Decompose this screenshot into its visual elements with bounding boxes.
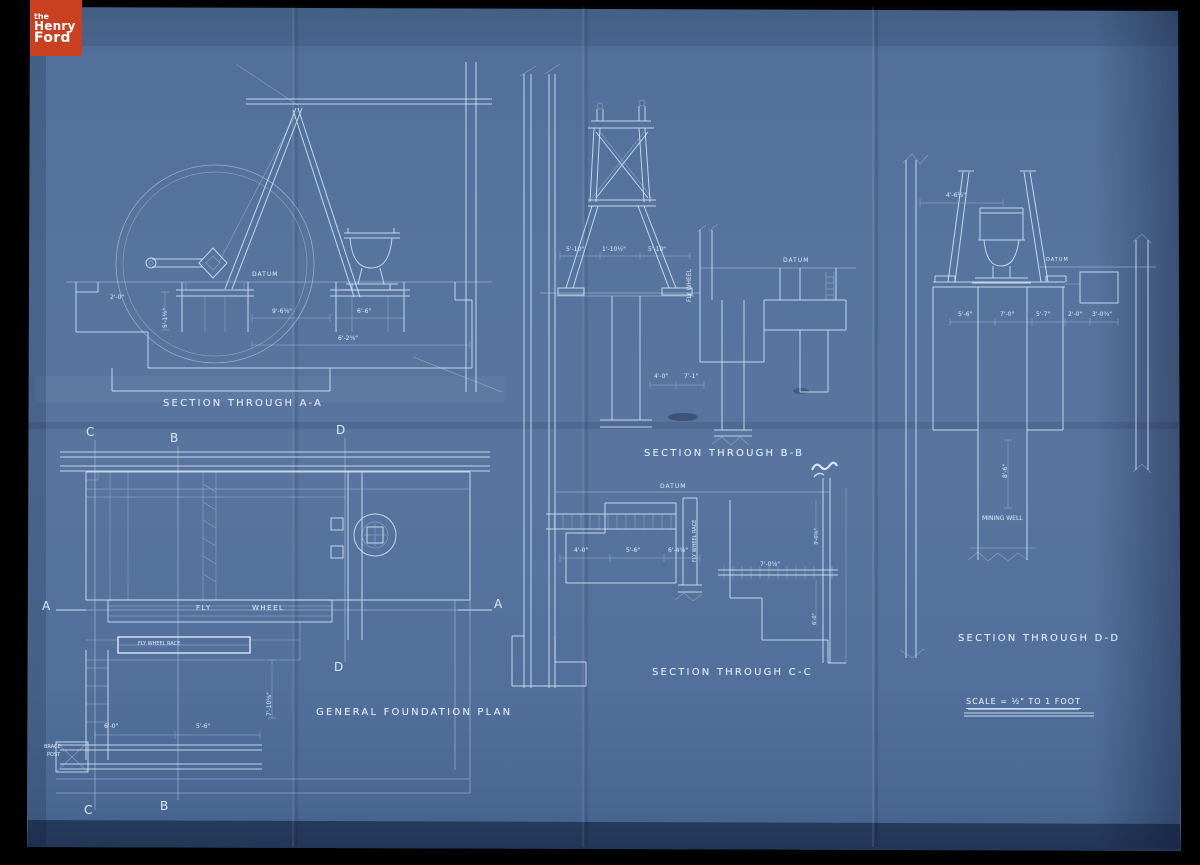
dimension-label: 4'-0" (574, 547, 588, 554)
dimension-label: 5'-6" (196, 723, 210, 730)
section-dd-title: SECTION THROUGH D-D (958, 633, 1120, 644)
dimension-label: 8'-6" (1002, 464, 1009, 478)
section-marker-b-top: B (170, 431, 178, 445)
section-cc-title: SECTION THROUGH C-C (652, 667, 813, 678)
datum-label: DATUM (660, 483, 686, 490)
section-marker-b-bottom: B (160, 799, 168, 813)
dimension-label: 2'-0" (1068, 311, 1082, 318)
fly-wheel-vertical-label: FLY WHEEL (686, 269, 693, 302)
scale-note: SCALE = ½" TO 1 FOOT (966, 697, 1081, 709)
dimension-label: 1'-10½" (602, 246, 626, 253)
dimension-label: 6'-6" (357, 308, 371, 315)
dimension-label: 5'-1½" (162, 308, 169, 328)
fly-wheel-race-vertical-label: FLY WHEEL RACE (692, 520, 698, 562)
blueprint-photo: the Henry Ford SECTION THROUGH A-A SECTI… (0, 0, 1200, 865)
dimension-label: 7'-0⅝" (760, 561, 780, 568)
dimension-label: 7'-10⅝" (266, 692, 273, 716)
section-marker-a-right: A (494, 597, 502, 611)
brace-post-label: BRACE (44, 744, 61, 750)
dimension-label: 4'-0" (654, 373, 668, 380)
dimension-label: 6'-0" (812, 613, 818, 625)
mining-well-label: MINING WELL (982, 515, 1023, 522)
section-marker-c-bottom: C (84, 803, 92, 817)
brace-post-label: POST (47, 752, 60, 758)
section-marker-c-top: C (86, 425, 94, 439)
section-bb-title: SECTION THROUGH B-B (644, 448, 804, 459)
foundation-plan-title: GENERAL FOUNDATION PLAN (316, 707, 512, 718)
section-aa-title: SECTION THROUGH A-A (163, 398, 323, 409)
dimension-label: 6'-4⅝" (668, 547, 688, 554)
dimension-label: 5'-7" (1036, 311, 1050, 318)
dimension-label: 7'-1" (684, 373, 698, 380)
dimension-label: 4'-6½" (946, 192, 966, 199)
dimension-label: 5'-6" (626, 547, 640, 554)
logo-ford: Ford (34, 32, 82, 45)
fly-wheel-race-label: FLY WHEEL RACE (138, 641, 180, 647)
dimension-label: 5'-6" (958, 311, 972, 318)
blueprint-linework (0, 0, 1200, 865)
dimension-label: 3'-0⅝" (814, 528, 820, 545)
datum-label: DATUM (783, 257, 809, 264)
datum-label: DATUM (1046, 257, 1069, 263)
dimension-label: 7'-0" (1000, 311, 1014, 318)
dimension-label: 5'-10" (566, 246, 584, 253)
fly-wheel-label: FLY (196, 604, 212, 612)
dimension-label: 6'-2⅝" (338, 335, 358, 342)
dimension-label: 9'-6⅝" (272, 308, 292, 315)
fly-wheel-label: WHEEL (252, 604, 284, 612)
dimension-label: 5'-10" (648, 246, 666, 253)
datum-label: DATUM (252, 271, 278, 278)
section-marker-d-top: D (336, 423, 345, 437)
dimension-label: 2'-0" (110, 294, 124, 301)
section-marker-d-bottom: D (334, 660, 343, 674)
section-marker-a-left: A (42, 599, 50, 613)
dimension-label: 3'-0¾" (1092, 311, 1112, 318)
henry-ford-logo: the Henry Ford (30, 0, 82, 56)
dimension-label: 6'-0" (104, 723, 118, 730)
